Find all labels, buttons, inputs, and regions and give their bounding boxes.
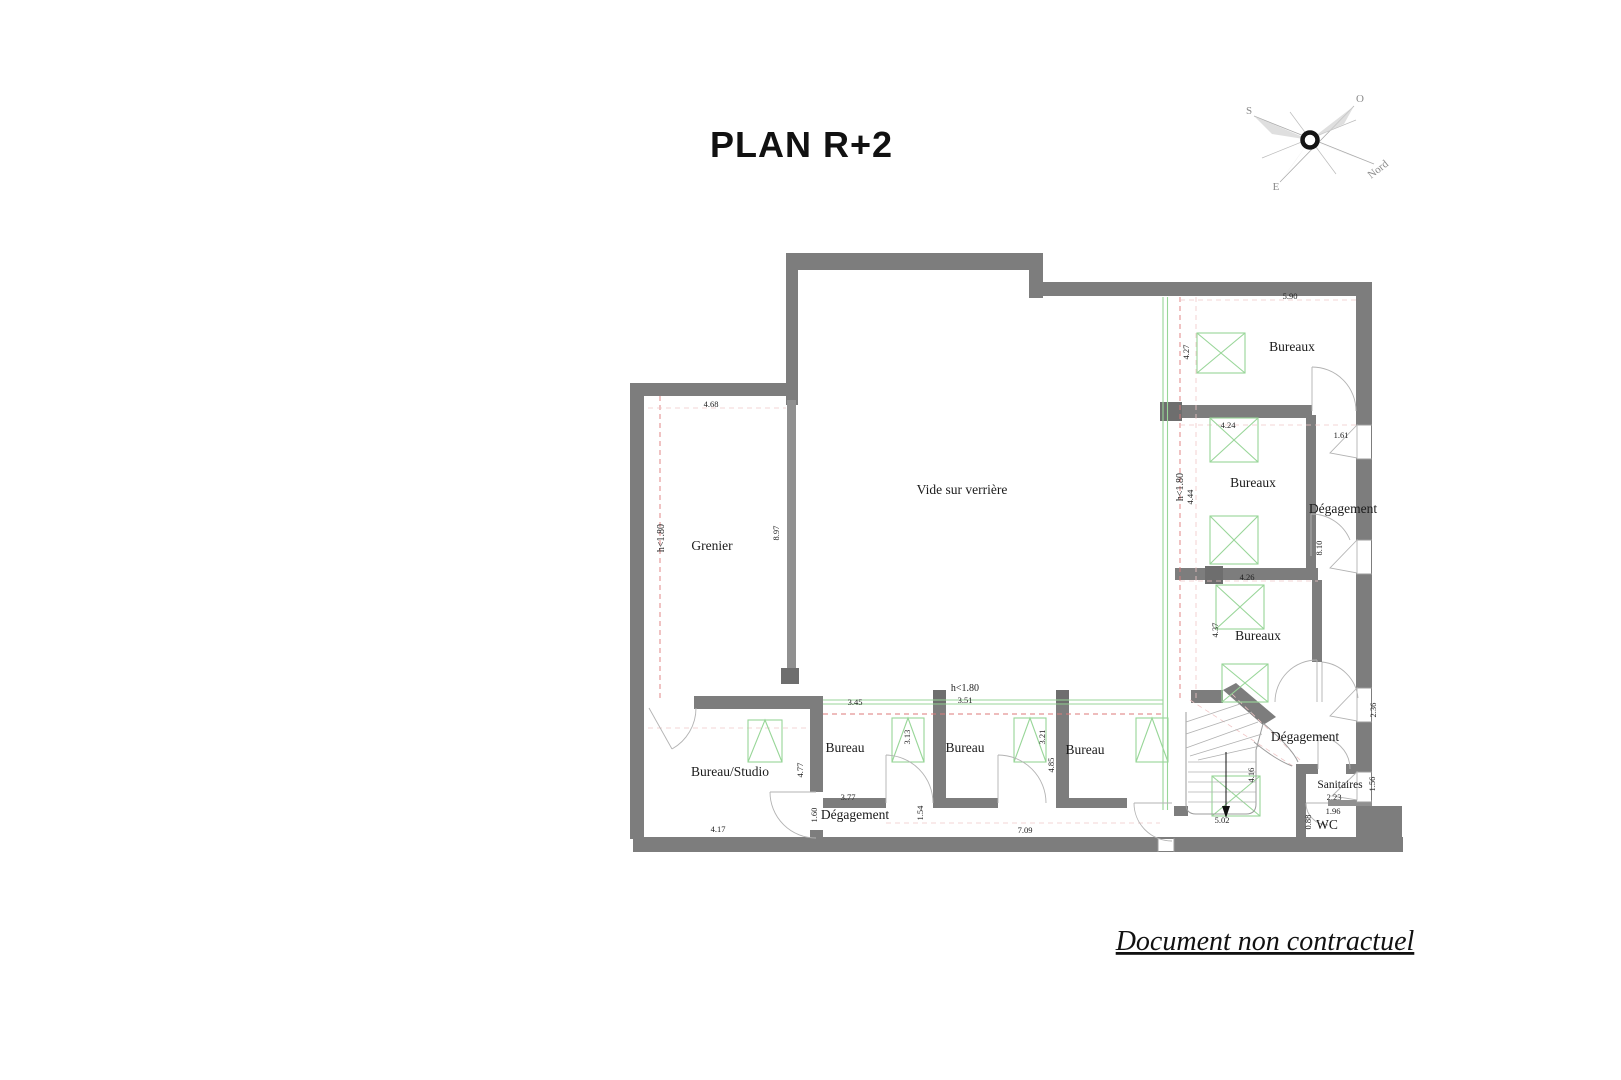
- wall: [633, 837, 1403, 852]
- dim-degagement-bottom-width: 3.77: [841, 792, 856, 802]
- wall: [933, 690, 946, 705]
- dim-degagement-bottom-left: 1.60: [809, 808, 819, 823]
- dim-degagement-se-bottom: 5.02: [1215, 815, 1230, 825]
- wall: [786, 253, 798, 405]
- window-x-icon: [1197, 333, 1245, 373]
- door-arc: [1275, 660, 1317, 702]
- room-label-degagement-se: Dégagement: [1271, 729, 1339, 744]
- compass-rose-icon: O S E Nord: [1246, 93, 1391, 193]
- wall: [946, 798, 998, 808]
- skylight-icon: [748, 720, 782, 762]
- room-label-bureaux-low: Bureaux: [1235, 628, 1281, 643]
- height-limit-labels: h<1.80 h<1.80 h<1.80: [656, 473, 1186, 694]
- dim-degagement-se-depth: 4.16: [1246, 768, 1256, 783]
- window-x-icon: [1210, 516, 1258, 564]
- wall: [1312, 580, 1322, 662]
- dim-bureau3-depth: 4.85: [1046, 758, 1056, 773]
- dim-bureaux-low-width: 4.26: [1240, 572, 1255, 582]
- room-label-bureaux-top: Bureaux: [1269, 339, 1315, 354]
- dim-bureau1-width: 3.45: [848, 697, 863, 707]
- wall: [1069, 798, 1127, 808]
- dim-corridor-total: 7.09: [1018, 825, 1033, 835]
- dim-sanitaires-width: 2.23: [1327, 792, 1342, 802]
- h-limit-label: h<1.80: [656, 524, 667, 552]
- door-arc: [1312, 367, 1356, 411]
- window-icon: [1158, 838, 1174, 852]
- room-label-sanitaires: Sanitaires: [1317, 779, 1363, 791]
- dim-bureau1-depth: 3.13: [902, 730, 912, 745]
- room-label-bureau-studio: Bureau/Studio: [691, 764, 769, 779]
- compass-south-label: S: [1246, 105, 1252, 117]
- wall: [781, 668, 799, 684]
- room-label-bureau2: Bureau: [946, 740, 985, 755]
- compass-west-label: O: [1356, 93, 1364, 105]
- dim-bureau-studio-depth: 4.77: [795, 763, 805, 778]
- wall: [1056, 690, 1069, 705]
- dim-bureaux-top-width: 5.90: [1283, 291, 1298, 301]
- compass-north-label: Nord: [1366, 158, 1392, 182]
- room-label-wc: WC: [1316, 817, 1338, 832]
- window-icon: [1330, 540, 1372, 574]
- wall: [810, 830, 823, 844]
- wall: [1360, 806, 1402, 839]
- glazing-layer: [823, 297, 1168, 810]
- wall: [933, 690, 946, 808]
- dim-degagement-bottom-mid: 1.54: [915, 805, 925, 821]
- dim-degagement-right-width: 1.61: [1334, 430, 1349, 440]
- dim-sanitaires-depth: 1.56: [1367, 777, 1377, 792]
- room-label-degagement-right: Dégagement: [1309, 501, 1377, 516]
- room-label-degagement-bottom: Dégagement: [821, 807, 889, 822]
- disclaimer-text: Document non contractuel: [1115, 926, 1415, 957]
- wall: [787, 400, 796, 678]
- wall: [630, 383, 644, 839]
- wall: [1036, 282, 1372, 296]
- compass-center-icon: [1303, 133, 1318, 148]
- dim-bureaux-mid-width: 4.24: [1221, 420, 1237, 430]
- dimension-labels: 5.90 4.27 4.68 8.97 4.24 1.61 4.44 8.10 …: [704, 291, 1378, 835]
- room-label-vide: Vide sur verrière: [917, 482, 1008, 497]
- wall: [694, 696, 814, 709]
- compass-east-label: E: [1273, 181, 1280, 193]
- dim-wc-top: 1.96: [1326, 806, 1341, 816]
- room-label-bureaux-mid: Bureaux: [1230, 475, 1276, 490]
- dim-bureau2-depth: 3.21: [1037, 730, 1047, 745]
- dim-bureaux-mid-depth: 4.44: [1185, 489, 1195, 505]
- wall: [810, 696, 823, 792]
- door-arc: [1134, 803, 1172, 841]
- dim-wc-side: 0.88: [1303, 815, 1313, 830]
- window-icon: [1330, 688, 1372, 722]
- floor-plan-page: PLAN R+2 O S E Nord: [0, 0, 1621, 1080]
- dim-corridor-length: 8.10: [1314, 541, 1324, 556]
- wall: [1160, 405, 1312, 418]
- h-limit-label: h<1.80: [951, 683, 979, 694]
- wall: [630, 383, 787, 396]
- dim-grenier-width: 4.68: [704, 399, 719, 409]
- dim-bureaux-top-depth: 4.27: [1181, 345, 1191, 360]
- room-label-bureau1: Bureau: [826, 740, 865, 755]
- dim-grenier-depth: 8.97: [771, 526, 781, 541]
- room-label-grenier: Grenier: [691, 538, 733, 553]
- room-label-bureau3: Bureau: [1066, 742, 1105, 757]
- door-arc: [649, 708, 696, 749]
- window-x-icon: [1216, 585, 1264, 629]
- dim-bureau-studio-width: 4.17: [711, 824, 726, 834]
- dim-bureaux-low-depth: 4.37: [1210, 623, 1220, 638]
- page-title: PLAN R+2: [710, 124, 893, 165]
- dim-bureau2-width: 3.51: [958, 695, 973, 705]
- wall: [786, 253, 1043, 270]
- height-limit-lines: [648, 297, 1356, 823]
- dim-degagement-se-wall: 2.36: [1368, 703, 1378, 718]
- floor-plan-drawing: PLAN R+2 O S E Nord: [0, 0, 1621, 1080]
